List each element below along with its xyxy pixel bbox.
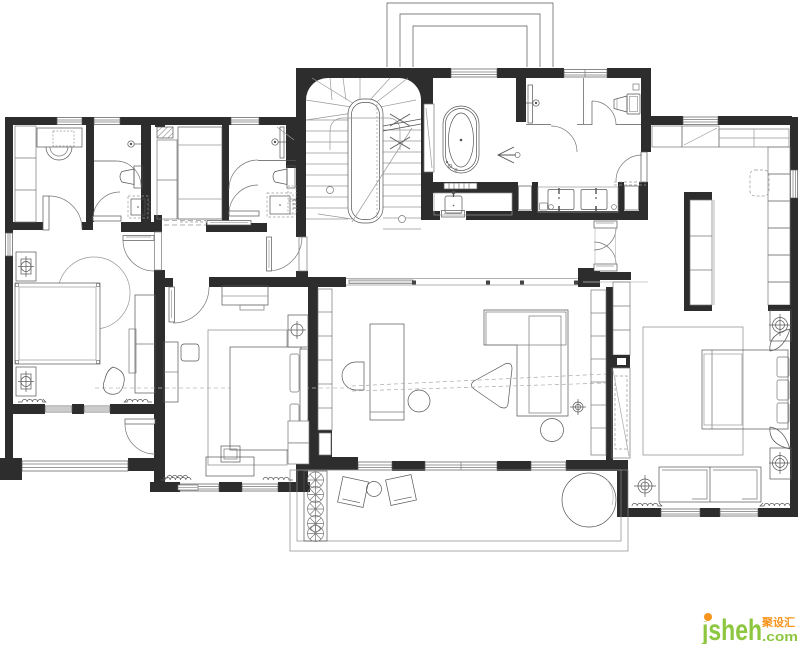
svg-text:聚设汇: 聚设汇 (761, 615, 795, 629)
svg-text:.com: .com (762, 629, 798, 644)
